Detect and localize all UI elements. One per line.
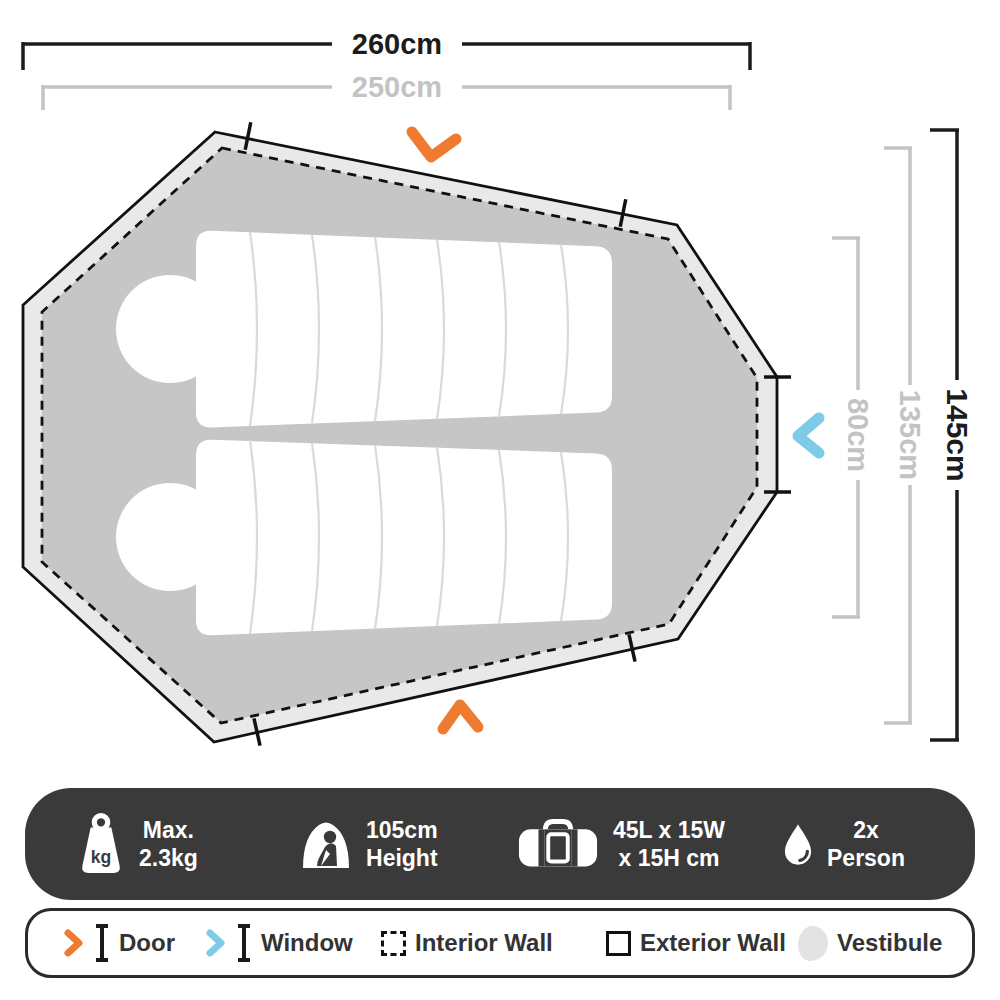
spec-bar: kg Max. 2.3kg 105cm Height [25, 788, 975, 900]
inner-height-dimension-label: 135cm [894, 385, 926, 485]
capacity-icon [783, 822, 813, 866]
spec-packed-size: 45L x 15W x 15H cm [517, 788, 725, 900]
spec-line2: 2.3kg [139, 844, 198, 872]
wall-opening-icon [236, 922, 252, 964]
legend-label: Vestibule [837, 929, 942, 957]
height-icon [300, 818, 352, 870]
legend-label: Window [261, 929, 353, 957]
outer-height-dimension-label: 145cm [940, 380, 974, 490]
window-icon [205, 928, 227, 958]
door-marker-bottom [443, 705, 478, 729]
packed-size-icon [517, 818, 599, 870]
weight-icon: kg [77, 813, 125, 875]
door-icon [63, 928, 85, 958]
window-marker-right [798, 418, 819, 453]
spec-text: 2x Person [827, 816, 905, 872]
spec-capacity: 2x Person [783, 788, 905, 900]
legend-label: Exterior Wall [640, 929, 786, 957]
weight-icon-kg-label: kg [91, 847, 111, 867]
spec-max-weight: kg Max. 2.3kg [77, 788, 198, 900]
tent-floorplan-diagram: 260cm 250cm 145cm 135cm 80cm kg Max. 2.3… [0, 0, 1000, 1000]
legend-item-exterior-wall: Exterior Wall [606, 911, 786, 975]
outer-width-dimension-label: 260cm [332, 27, 462, 61]
pad-height-dimension-label: 80cm [842, 390, 874, 480]
spec-text: 105cm Height [366, 816, 438, 872]
legend-label: Interior Wall [415, 929, 553, 957]
spec-line1: 105cm [366, 816, 438, 844]
spec-line1: 2x [827, 816, 905, 844]
legend-item-door: Door [63, 911, 175, 975]
spec-height: 105cm Height [300, 788, 438, 900]
spec-line2: Height [366, 844, 438, 872]
vestibule-icon [798, 926, 828, 961]
inner-width-dimension-label: 250cm [332, 70, 462, 104]
spec-line1: Max. [139, 816, 198, 844]
legend-label: Door [119, 929, 175, 957]
door-marker-top [412, 132, 456, 157]
wall-opening-icon [94, 922, 110, 964]
legend-item-interior-wall: Interior Wall [381, 911, 553, 975]
spec-line2: Person [827, 844, 905, 872]
exterior-wall-icon [606, 931, 631, 956]
spec-text: Max. 2.3kg [139, 816, 198, 872]
spec-line2: x 15H cm [613, 844, 725, 872]
legend-item-vestibule: Vestibule [798, 911, 942, 975]
legend-bar: Door Window Interior Wall Exterior Wall … [25, 908, 975, 978]
legend-item-window: Window [205, 911, 353, 975]
spec-line1: 45L x 15W [613, 816, 725, 844]
interior-wall-icon [381, 931, 406, 956]
spec-text: 45L x 15W x 15H cm [613, 816, 725, 872]
